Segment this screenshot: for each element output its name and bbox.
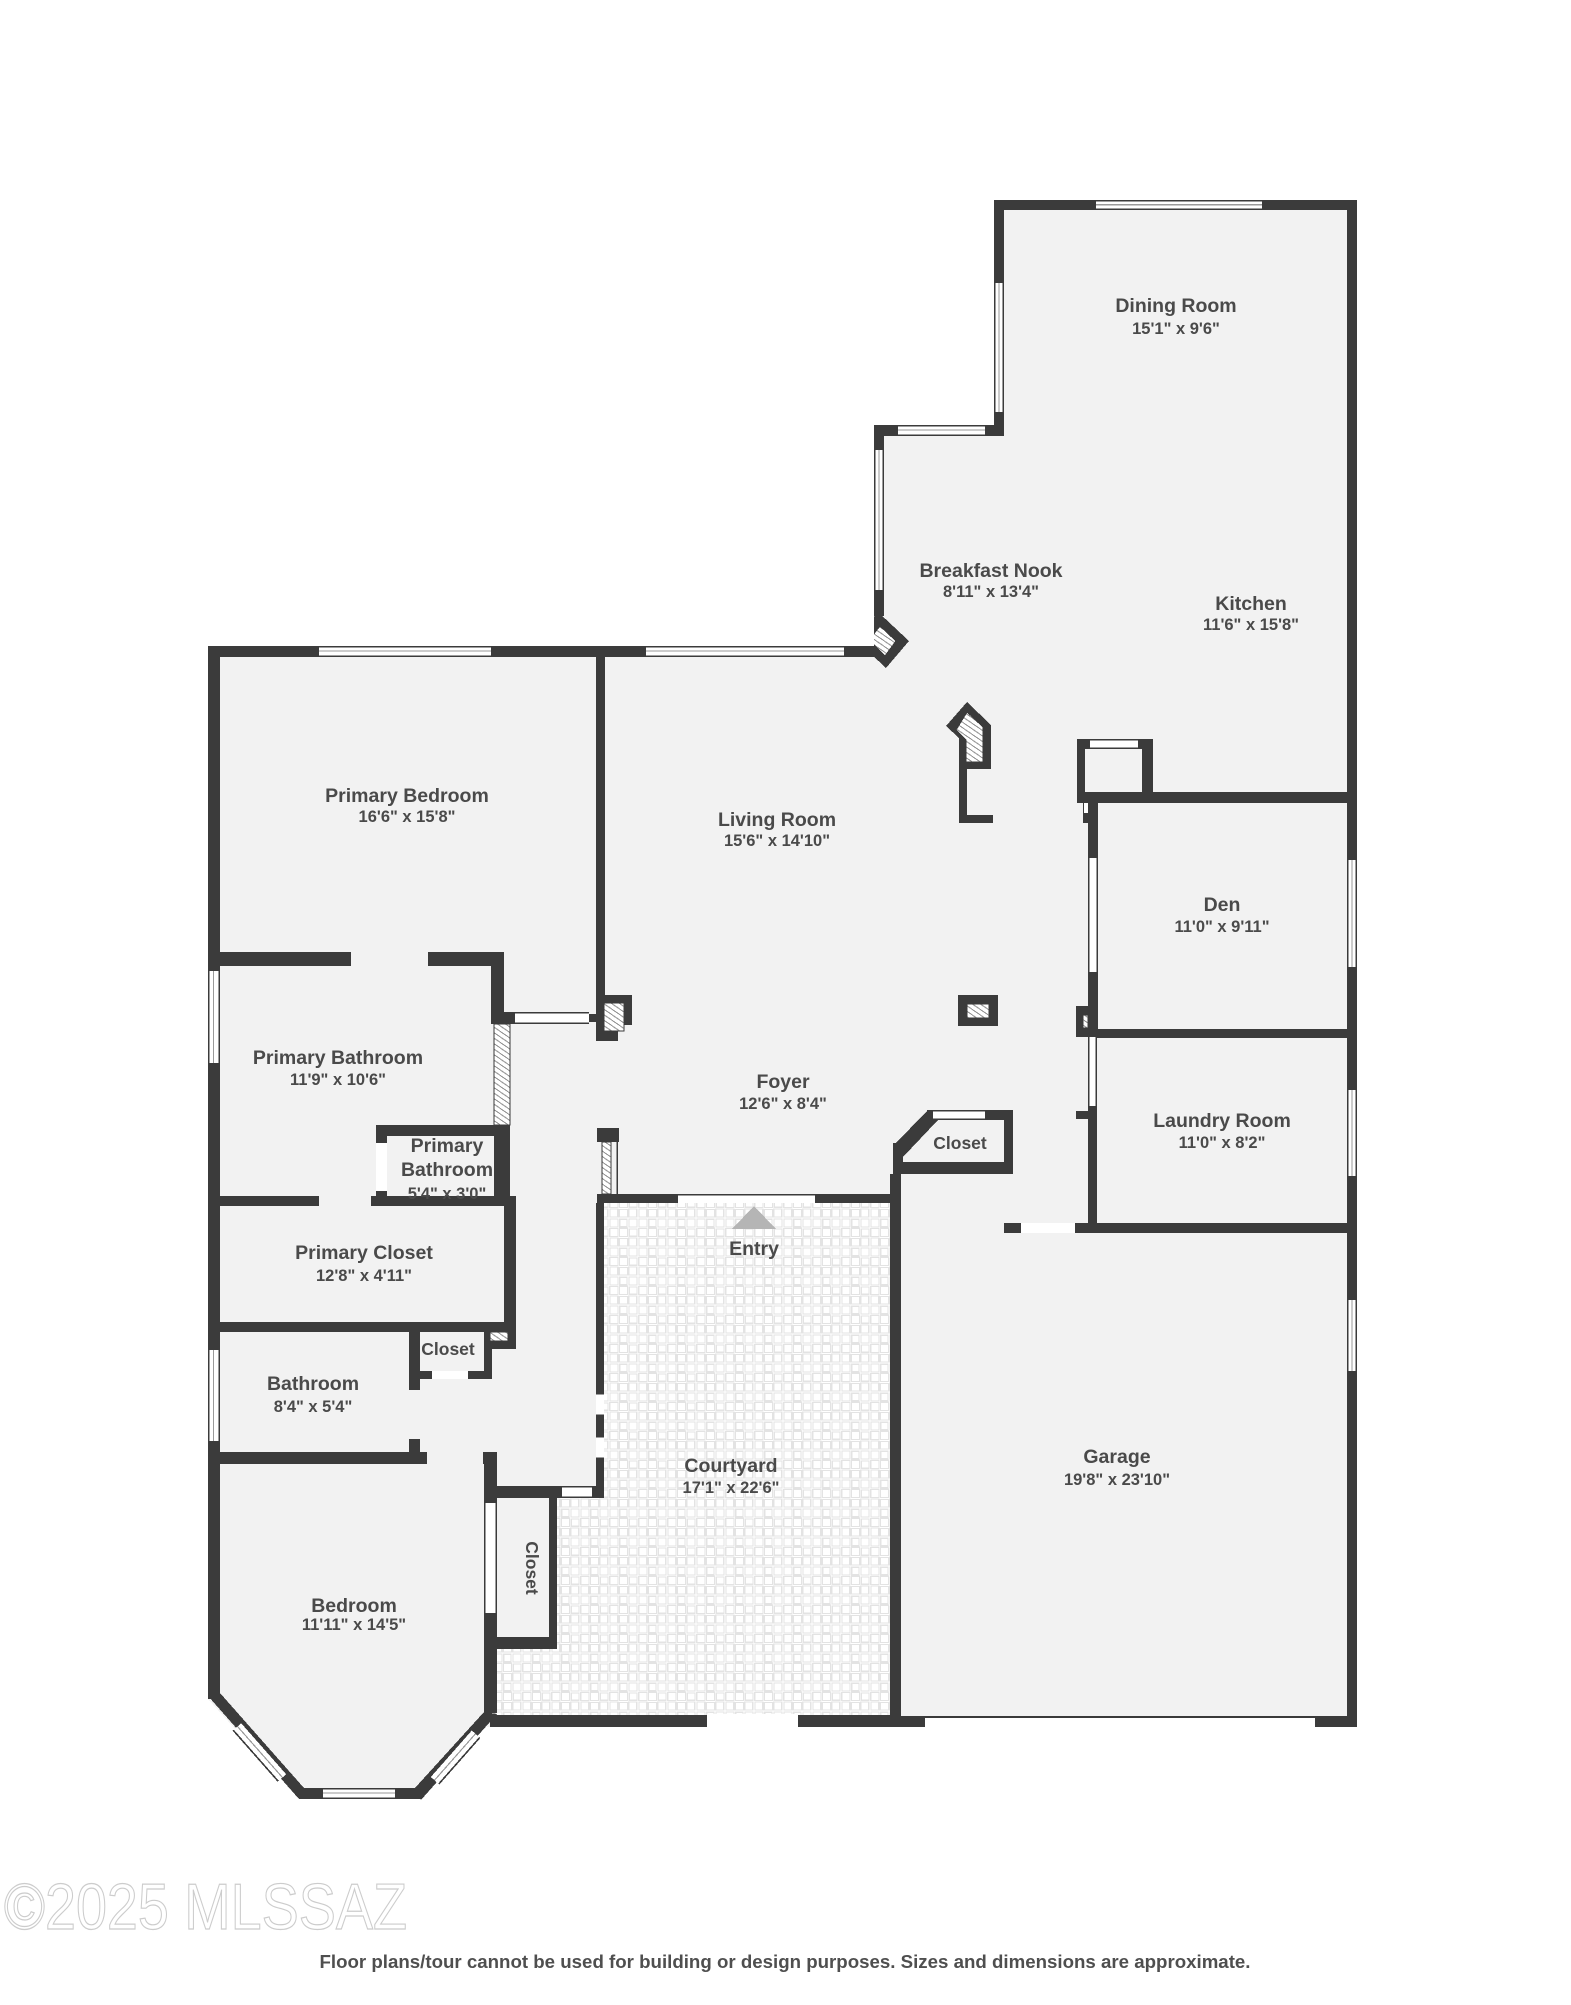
svg-text:Courtyard: Courtyard (684, 1455, 777, 1477)
svg-text:11'0" x 9'11": 11'0" x 9'11" (1174, 918, 1269, 936)
svg-text:Primary: Primary (411, 1135, 484, 1157)
svg-text:8'4" x 5'4": 8'4" x 5'4" (274, 1398, 353, 1416)
svg-text:15'6" x 14'10": 15'6" x 14'10" (724, 832, 830, 850)
svg-text:16'6" x 15'8": 16'6" x 15'8" (359, 808, 456, 826)
svg-text:Primary Bedroom: Primary Bedroom (325, 785, 489, 807)
svg-text:Foyer: Foyer (756, 1071, 810, 1093)
svg-text:11'0" x 8'2": 11'0" x 8'2" (1179, 1134, 1266, 1152)
svg-text:Closet: Closet (522, 1541, 542, 1595)
svg-text:Entry: Entry (729, 1238, 779, 1260)
svg-text:17'1" x 22'6": 17'1" x 22'6" (683, 1479, 780, 1497)
svg-text:Laundry Room: Laundry Room (1153, 1110, 1291, 1132)
svg-text:11'6" x 15'8": 11'6" x 15'8" (1203, 616, 1299, 634)
svg-text:11'9" x 10'6": 11'9" x 10'6" (290, 1071, 386, 1089)
svg-text:12'6" x 8'4": 12'6" x 8'4" (739, 1095, 827, 1113)
svg-text:8'11" x 13'4": 8'11" x 13'4" (943, 583, 1039, 601)
svg-text:Bathroom: Bathroom (401, 1159, 493, 1181)
svg-text:Bedroom: Bedroom (311, 1595, 397, 1617)
svg-text:19'8" x 23'10": 19'8" x 23'10" (1064, 1471, 1170, 1489)
svg-text:Kitchen: Kitchen (1215, 593, 1287, 615)
svg-text:Den: Den (1204, 894, 1241, 916)
svg-text:5'4" x 3'0": 5'4" x 3'0" (408, 1185, 487, 1203)
svg-text:Bathroom: Bathroom (267, 1373, 359, 1395)
svg-text:15'1" x 9'6": 15'1" x 9'6" (1132, 320, 1220, 338)
svg-text:11'11" x 14'5": 11'11" x 14'5" (302, 1616, 406, 1634)
svg-text:Primary Bathroom: Primary Bathroom (253, 1047, 423, 1069)
svg-text:Garage: Garage (1083, 1446, 1150, 1468)
svg-text:Floor plans/tour cannot be use: Floor plans/tour cannot be used for buil… (320, 1951, 1251, 1972)
svg-text:Dining Room: Dining Room (1115, 295, 1236, 317)
svg-text:Closet: Closet (933, 1133, 987, 1153)
svg-text:Breakfast Nook: Breakfast Nook (919, 560, 1062, 582)
svg-text:Closet: Closet (421, 1339, 475, 1359)
svg-text:Living Room: Living Room (718, 809, 836, 831)
svg-text:©2025 MLSSAZ: ©2025 MLSSAZ (4, 1870, 407, 1943)
svg-text:12'8" x 4'11": 12'8" x 4'11" (316, 1267, 412, 1285)
svg-text:Primary Closet: Primary Closet (295, 1242, 433, 1264)
